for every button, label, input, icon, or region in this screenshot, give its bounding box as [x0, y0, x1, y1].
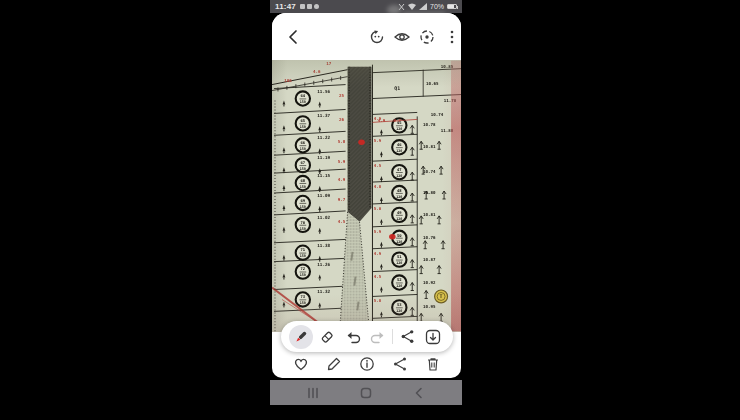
status-bar: 11:47 70% — [270, 0, 462, 13]
clock-notif-icon — [314, 4, 319, 9]
svg-text:72: 72 — [301, 266, 306, 271]
svg-text:120: 120 — [396, 309, 402, 313]
svg-text:T: T — [440, 293, 443, 299]
svg-text:49: 49 — [397, 210, 402, 215]
svg-text:17: 17 — [326, 61, 332, 66]
svg-text:10.78: 10.78 — [423, 122, 436, 127]
more-menu-icon[interactable] — [446, 29, 458, 45]
gallery-action-bar — [272, 350, 461, 378]
svg-text:65: 65 — [301, 118, 306, 123]
svg-text:25: 25 — [339, 93, 345, 98]
gallery-card: 186174.611.56256415011.37266515011.225.0… — [272, 13, 461, 378]
redo-icon — [370, 329, 386, 345]
svg-text:4.9: 4.9 — [378, 118, 386, 123]
svg-text:46: 46 — [397, 142, 402, 147]
svg-text:9.7: 9.7 — [338, 197, 346, 202]
svg-text:5.9: 5.9 — [338, 159, 346, 164]
svg-text:10.74: 10.74 — [423, 169, 436, 174]
pen-tool-icon — [293, 329, 309, 345]
svg-text:150: 150 — [300, 185, 306, 189]
cadastral-map: 186174.611.56256415011.37266515011.225.0… — [272, 60, 461, 332]
android-nav-bar — [270, 380, 462, 405]
svg-text:53: 53 — [397, 302, 402, 307]
svg-text:70: 70 — [301, 220, 306, 225]
eraser-tool-icon — [319, 329, 335, 345]
svg-text:4.9: 4.9 — [374, 251, 382, 256]
svg-text:11.22: 11.22 — [317, 135, 330, 140]
svg-text:11.09: 11.09 — [317, 193, 330, 198]
battery-percent: 70% — [430, 3, 444, 10]
svg-text:150: 150 — [300, 147, 306, 151]
recents-icon[interactable] — [307, 387, 319, 399]
screenshot-stage: 11:47 70% — [0, 0, 740, 420]
svg-text:120: 120 — [396, 240, 402, 244]
download-button[interactable] — [421, 325, 445, 349]
svg-text:10.92: 10.92 — [423, 280, 436, 285]
rotate-icon[interactable] — [369, 29, 385, 45]
svg-text:120: 120 — [396, 174, 402, 178]
svg-text:11.56: 11.56 — [317, 89, 330, 94]
svg-text:10.74: 10.74 — [431, 112, 444, 117]
undo-icon — [345, 329, 361, 345]
favorite-icon[interactable] — [293, 356, 309, 372]
delete-icon[interactable] — [425, 356, 441, 372]
svg-text:Q1: Q1 — [394, 85, 400, 91]
map-canvas[interactable]: 186174.611.56256415011.37266515011.225.0… — [272, 60, 461, 332]
svg-text:120: 120 — [396, 261, 402, 265]
svg-text:51: 51 — [397, 254, 402, 259]
svg-text:4.5: 4.5 — [338, 219, 346, 224]
svg-text:10.76: 10.76 — [423, 235, 436, 240]
app-toolbar — [272, 13, 461, 60]
svg-text:11.02: 11.02 — [317, 215, 330, 220]
svg-text:120: 120 — [396, 217, 402, 221]
phone-screen: 11:47 70% — [270, 0, 462, 420]
svg-text:68: 68 — [301, 178, 306, 183]
svg-text:150: 150 — [300, 100, 306, 104]
svg-text:10.65: 10.65 — [426, 81, 439, 86]
eraser-tool-button[interactable] — [315, 325, 339, 349]
svg-text:150: 150 — [300, 254, 306, 258]
back-icon[interactable] — [286, 29, 302, 45]
share-alt-icon[interactable] — [392, 356, 408, 372]
signal-icon — [419, 3, 427, 10]
share-icon — [400, 329, 415, 344]
svg-text:11.19: 11.19 — [317, 155, 330, 160]
svg-text:4.8: 4.8 — [374, 184, 382, 189]
redo-button[interactable] — [366, 325, 390, 349]
svg-text:5.9: 5.9 — [374, 138, 382, 143]
edit-icon[interactable] — [326, 356, 342, 372]
svg-text:69: 69 — [301, 198, 306, 203]
motion-photo-icon[interactable] — [419, 29, 435, 45]
eye-icon[interactable] — [394, 29, 410, 45]
markup-toolbar — [281, 321, 453, 352]
svg-text:11.15: 11.15 — [317, 173, 330, 178]
svg-text:150: 150 — [300, 273, 306, 277]
svg-text:186: 186 — [284, 78, 292, 83]
svg-text:4.5: 4.5 — [374, 163, 382, 168]
battery-icon — [447, 4, 457, 9]
svg-text:150: 150 — [300, 205, 306, 209]
vibrate-icon — [398, 3, 405, 11]
svg-text:10.87: 10.87 — [423, 257, 436, 262]
svg-text:64: 64 — [301, 93, 306, 98]
svg-text:26: 26 — [339, 117, 345, 122]
svg-text:10.95: 10.95 — [423, 304, 436, 309]
notification-icons — [300, 4, 319, 9]
svg-text:5.0: 5.0 — [338, 139, 346, 144]
svg-text:50: 50 — [397, 233, 402, 238]
svg-text:150: 150 — [300, 227, 306, 231]
svg-text:11.32: 11.32 — [317, 289, 330, 294]
svg-text:47: 47 — [397, 167, 402, 172]
svg-text:11.26: 11.26 — [317, 262, 330, 267]
svg-text:150: 150 — [300, 125, 306, 129]
svg-text:52: 52 — [397, 277, 402, 282]
svg-text:48: 48 — [397, 188, 402, 193]
svg-text:10.81: 10.81 — [423, 144, 436, 149]
back-nav-icon[interactable] — [413, 387, 425, 399]
svg-text:11.38: 11.38 — [317, 243, 330, 248]
gallery-notif-icon — [300, 4, 305, 9]
svg-text:5.0: 5.0 — [374, 206, 382, 211]
wifi-icon — [408, 3, 416, 10]
svg-text:4.6: 4.6 — [313, 69, 321, 74]
svg-text:120: 120 — [396, 127, 402, 131]
svg-text:5.8: 5.8 — [374, 298, 382, 303]
svg-text:4.5: 4.5 — [374, 274, 382, 279]
pen-tool-button[interactable] — [289, 325, 313, 349]
message-notif-icon — [307, 4, 312, 9]
svg-text:120: 120 — [396, 195, 402, 199]
svg-text:10.81: 10.81 — [423, 212, 436, 217]
undo-button[interactable] — [341, 325, 365, 349]
svg-text:71: 71 — [301, 248, 306, 253]
svg-text:67: 67 — [301, 160, 306, 165]
svg-text:150: 150 — [300, 301, 306, 305]
svg-text:11.37: 11.37 — [317, 113, 330, 118]
svg-text:73: 73 — [301, 294, 306, 299]
info-icon[interactable] — [359, 356, 375, 372]
clock: 11:47 — [275, 2, 296, 11]
toolbar-divider — [392, 329, 393, 344]
svg-text:5.9: 5.9 — [374, 229, 382, 234]
home-icon[interactable] — [360, 387, 372, 399]
svg-text:4.9: 4.9 — [338, 177, 346, 182]
svg-text:150: 150 — [300, 167, 306, 171]
share-button[interactable] — [395, 325, 419, 349]
svg-text:120: 120 — [396, 149, 402, 153]
download-icon — [425, 329, 441, 345]
svg-text:66: 66 — [301, 140, 306, 145]
svg-text:120: 120 — [396, 284, 402, 288]
